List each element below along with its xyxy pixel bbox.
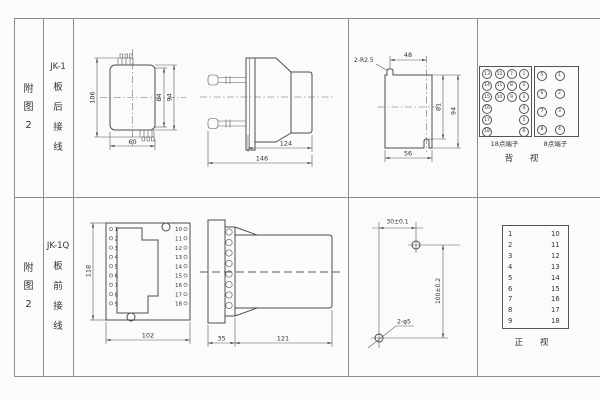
svg-text:84: 84 (155, 93, 163, 101)
svg-text:2: 2 (115, 237, 119, 243)
dimension-146: 146 (208, 131, 312, 167)
jk1-side-view-drawing: 124 146 (198, 45, 338, 175)
terminal-number: 16 (551, 294, 560, 305)
terminal-number: 10 (551, 229, 560, 240)
svg-text:81: 81 (435, 103, 443, 111)
hole-top-right (408, 237, 460, 253)
terminal-18pt-label: 18点端子 (479, 138, 530, 148)
terminal-number: 15 (551, 284, 560, 295)
terminal-screw-bottom (208, 119, 246, 129)
terminal-circle: 11 (495, 81, 505, 91)
terminal-circle: 16 (482, 104, 492, 114)
table-border-middle (14, 197, 600, 198)
dimension-35: 35 (208, 318, 235, 347)
panel-cutout-drawing: 2-R2.5 48 81 94 56 (352, 40, 474, 175)
svg-text:14: 14 (175, 264, 182, 270)
terminal-circle: 5 (537, 71, 547, 81)
terminal-circle: 18 (482, 127, 492, 137)
terminal-number: 17 (551, 305, 560, 316)
fig-label-row1: 附 图 2 (14, 18, 43, 197)
svg-text:102: 102 (142, 332, 154, 340)
model-name: JK-1Q (47, 240, 69, 253)
terminal-8pt-box: 5 1 6 2 7 3 8 4 (534, 66, 579, 137)
model-label-row2: JK-1Q 板 前 接 线 (43, 197, 73, 376)
hole-bottom-left (371, 330, 448, 348)
wiring-char: 板 (53, 81, 63, 94)
front-panel-left-column: 1 2 3 4 5 6 7 8 9 (508, 229, 512, 327)
svg-text:1: 1 (115, 227, 119, 233)
terminal-circle: 13 (482, 69, 492, 79)
svg-text:106: 106 (89, 91, 97, 103)
terminal-circle: 9 (507, 92, 517, 102)
jk1-front-view-drawing: 106 84 94 60 (86, 45, 198, 177)
terminal-circle: 10 (495, 92, 505, 102)
terminal-number: 7 (508, 294, 512, 305)
svg-text:6: 6 (115, 274, 119, 280)
table-col-line-3 (348, 18, 349, 376)
svg-text:8: 8 (115, 292, 119, 298)
jk1q-side-view-drawing: 35 121 (198, 213, 343, 353)
jk1q-front-view-drawing: 1 2 3 4 5 6 7 8 9 10 11 12 13 14 15 16 1… (84, 213, 196, 353)
wiring-char: 后 (53, 101, 63, 114)
svg-text:94: 94 (166, 93, 174, 101)
model-name: JK-1 (50, 61, 66, 74)
terminal-number: 4 (508, 262, 512, 273)
terminal-number: 8 (508, 305, 512, 316)
fig-char: 2 (25, 119, 31, 132)
mounting-hole (162, 223, 170, 231)
terminal-number: 5 (508, 273, 512, 284)
terminal-18pt-box: 13 12 7 1 14 11 8 2 15 10 9 3 16 4 17 5 … (479, 66, 532, 137)
cutout-outline (385, 69, 432, 148)
dimension-124: 124 (248, 135, 312, 152)
svg-text:48: 48 (404, 51, 412, 59)
svg-text:35: 35 (217, 335, 225, 343)
svg-text:118: 118 (85, 265, 93, 277)
terminal-circle: 3 (519, 92, 529, 102)
terminal-number: 12 (551, 251, 560, 262)
svg-text:15: 15 (175, 274, 182, 280)
svg-text:4: 4 (115, 255, 119, 261)
terminal-circle: 15 (482, 92, 492, 102)
terminal-circle: 12 (495, 69, 505, 79)
wiring-char: 接 (53, 121, 63, 134)
table-col-line-2 (73, 18, 74, 376)
svg-text:17: 17 (175, 292, 182, 298)
dimension-48: 48 (390, 51, 427, 61)
wiring-char: 板 (53, 260, 63, 273)
wiring-char: 接 (53, 300, 63, 313)
label-radius: 2-R2.5 (354, 57, 387, 70)
terminal-number: 1 (508, 229, 512, 240)
terminal-circle: 2 (519, 81, 529, 91)
left-terminal-column: 1 2 3 4 5 6 7 8 9 (109, 227, 118, 307)
dimension-102: 102 (106, 322, 190, 344)
svg-text:124: 124 (280, 140, 292, 148)
front-panel-right-column: 10 11 12 13 14 15 16 17 18 (551, 229, 560, 327)
front-panel-box: 1 2 3 4 5 6 7 8 9 10 11 12 13 14 15 16 1… (502, 225, 569, 329)
svg-text:5: 5 (115, 264, 119, 270)
fig-char: 附 (24, 262, 34, 275)
fig-char: 图 (24, 280, 34, 293)
svg-text:9: 9 (115, 302, 119, 308)
terminal-number: 9 (508, 316, 512, 327)
terminal-number: 2 (508, 240, 512, 251)
svg-text:11: 11 (175, 237, 182, 243)
svg-text:10: 10 (175, 227, 182, 233)
svg-text:94: 94 (450, 107, 458, 115)
svg-text:2-φ5: 2-φ5 (397, 319, 411, 326)
terminal-8pt-label: 8点端子 (534, 138, 577, 148)
svg-text:30±0.1: 30±0.1 (386, 219, 408, 226)
case-outline (246, 58, 312, 150)
svg-text:60: 60 (128, 138, 136, 146)
svg-text:12: 12 (175, 246, 182, 252)
terminal-number: 6 (508, 284, 512, 295)
inner-stepped-outline (117, 228, 158, 313)
dimension-121: 121 (235, 310, 332, 347)
dimension-56: 56 (385, 150, 432, 163)
terminal-number: 14 (551, 273, 560, 284)
terminal-circle: 17 (482, 115, 492, 125)
svg-text:100±0.2: 100±0.2 (435, 278, 442, 304)
svg-text:2-R2.5: 2-R2.5 (354, 57, 374, 64)
table-col-line-4 (477, 18, 478, 376)
fig-char: 图 (24, 101, 34, 114)
terminal-circle: 14 (482, 81, 492, 91)
wiring-char: 前 (53, 280, 63, 293)
svg-text:13: 13 (175, 255, 182, 261)
terminal-circle: 4 (555, 125, 565, 135)
front-view-caption: 正 视 (497, 336, 573, 348)
terminal-circle: 3 (555, 107, 565, 117)
fig-char: 附 (24, 83, 34, 96)
svg-text:16: 16 (175, 283, 182, 289)
wiring-char: 线 (53, 320, 63, 333)
drilling-plan-drawing: 30±0.1 100±0.2 2-φ5 (352, 208, 470, 363)
svg-text:3: 3 (115, 246, 119, 252)
dimension-30: 30±0.1 (372, 219, 423, 230)
terminal-circle: 7 (537, 107, 547, 117)
terminal-circle: 4 (519, 104, 529, 114)
svg-text:121: 121 (277, 335, 289, 343)
terminal-circle: 6 (519, 127, 529, 137)
model-label-row1: JK-1 板 后 接 线 (43, 18, 73, 197)
terminal-circle: 1 (519, 69, 529, 79)
terminal-number: 18 (551, 316, 560, 327)
table-border-bottom (14, 376, 600, 377)
svg-text:7: 7 (115, 283, 119, 289)
terminal-number: 13 (551, 262, 560, 273)
fig-label-row2: 附 图 2 (14, 197, 43, 376)
rear-view-caption: 背 视 (477, 152, 573, 164)
holes-label: 2-φ5 (368, 319, 414, 349)
table-border-top (14, 18, 600, 19)
terminal-circle: 2 (555, 89, 565, 99)
svg-text:146: 146 (256, 155, 268, 163)
right-terminal-column: 10 11 12 13 14 15 16 17 18 (175, 227, 187, 307)
fig-char: 2 (25, 298, 31, 311)
terminal-circle: 5 (519, 115, 529, 125)
svg-text:56: 56 (404, 150, 412, 158)
terminal-circle: 7 (507, 69, 517, 79)
terminal-circle: 6 (537, 89, 547, 99)
terminal-circle: 1 (555, 71, 565, 81)
terminal-screw-top (208, 75, 246, 85)
terminal-number: 3 (508, 251, 512, 262)
terminal-circle: 8 (537, 125, 547, 135)
terminal-number: 11 (551, 240, 560, 251)
terminal-circle: 8 (507, 81, 517, 91)
dimension-118: 118 (85, 223, 107, 320)
dimension-100: 100±0.2 (435, 245, 444, 338)
svg-text:18: 18 (175, 302, 182, 308)
wiring-char: 线 (53, 141, 63, 154)
drawing-sheet: 附 图 2 JK-1 板 后 接 线 106 (0, 0, 600, 400)
